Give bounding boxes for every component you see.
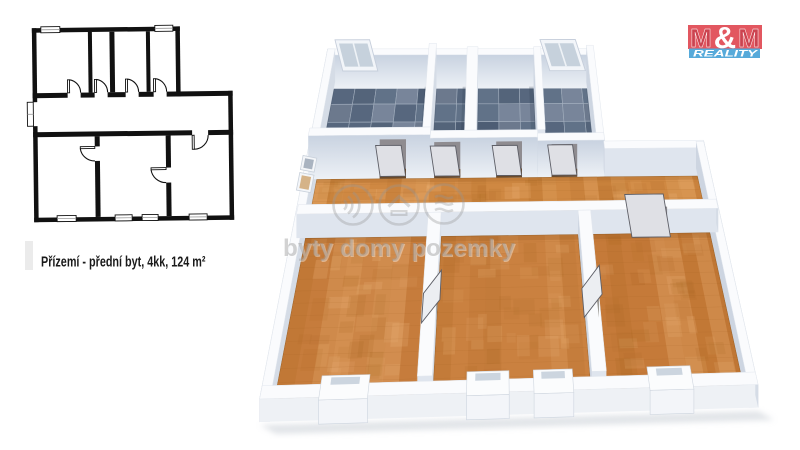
svg-text:REALITY: REALITY xyxy=(693,49,760,60)
svg-text:Přízemí - přední byt, 4kk, 124: Přízemí - přední byt, 4kk, 124 m² xyxy=(41,254,206,271)
svg-text:byty domy pozemky: byty domy pozemky xyxy=(283,235,516,262)
